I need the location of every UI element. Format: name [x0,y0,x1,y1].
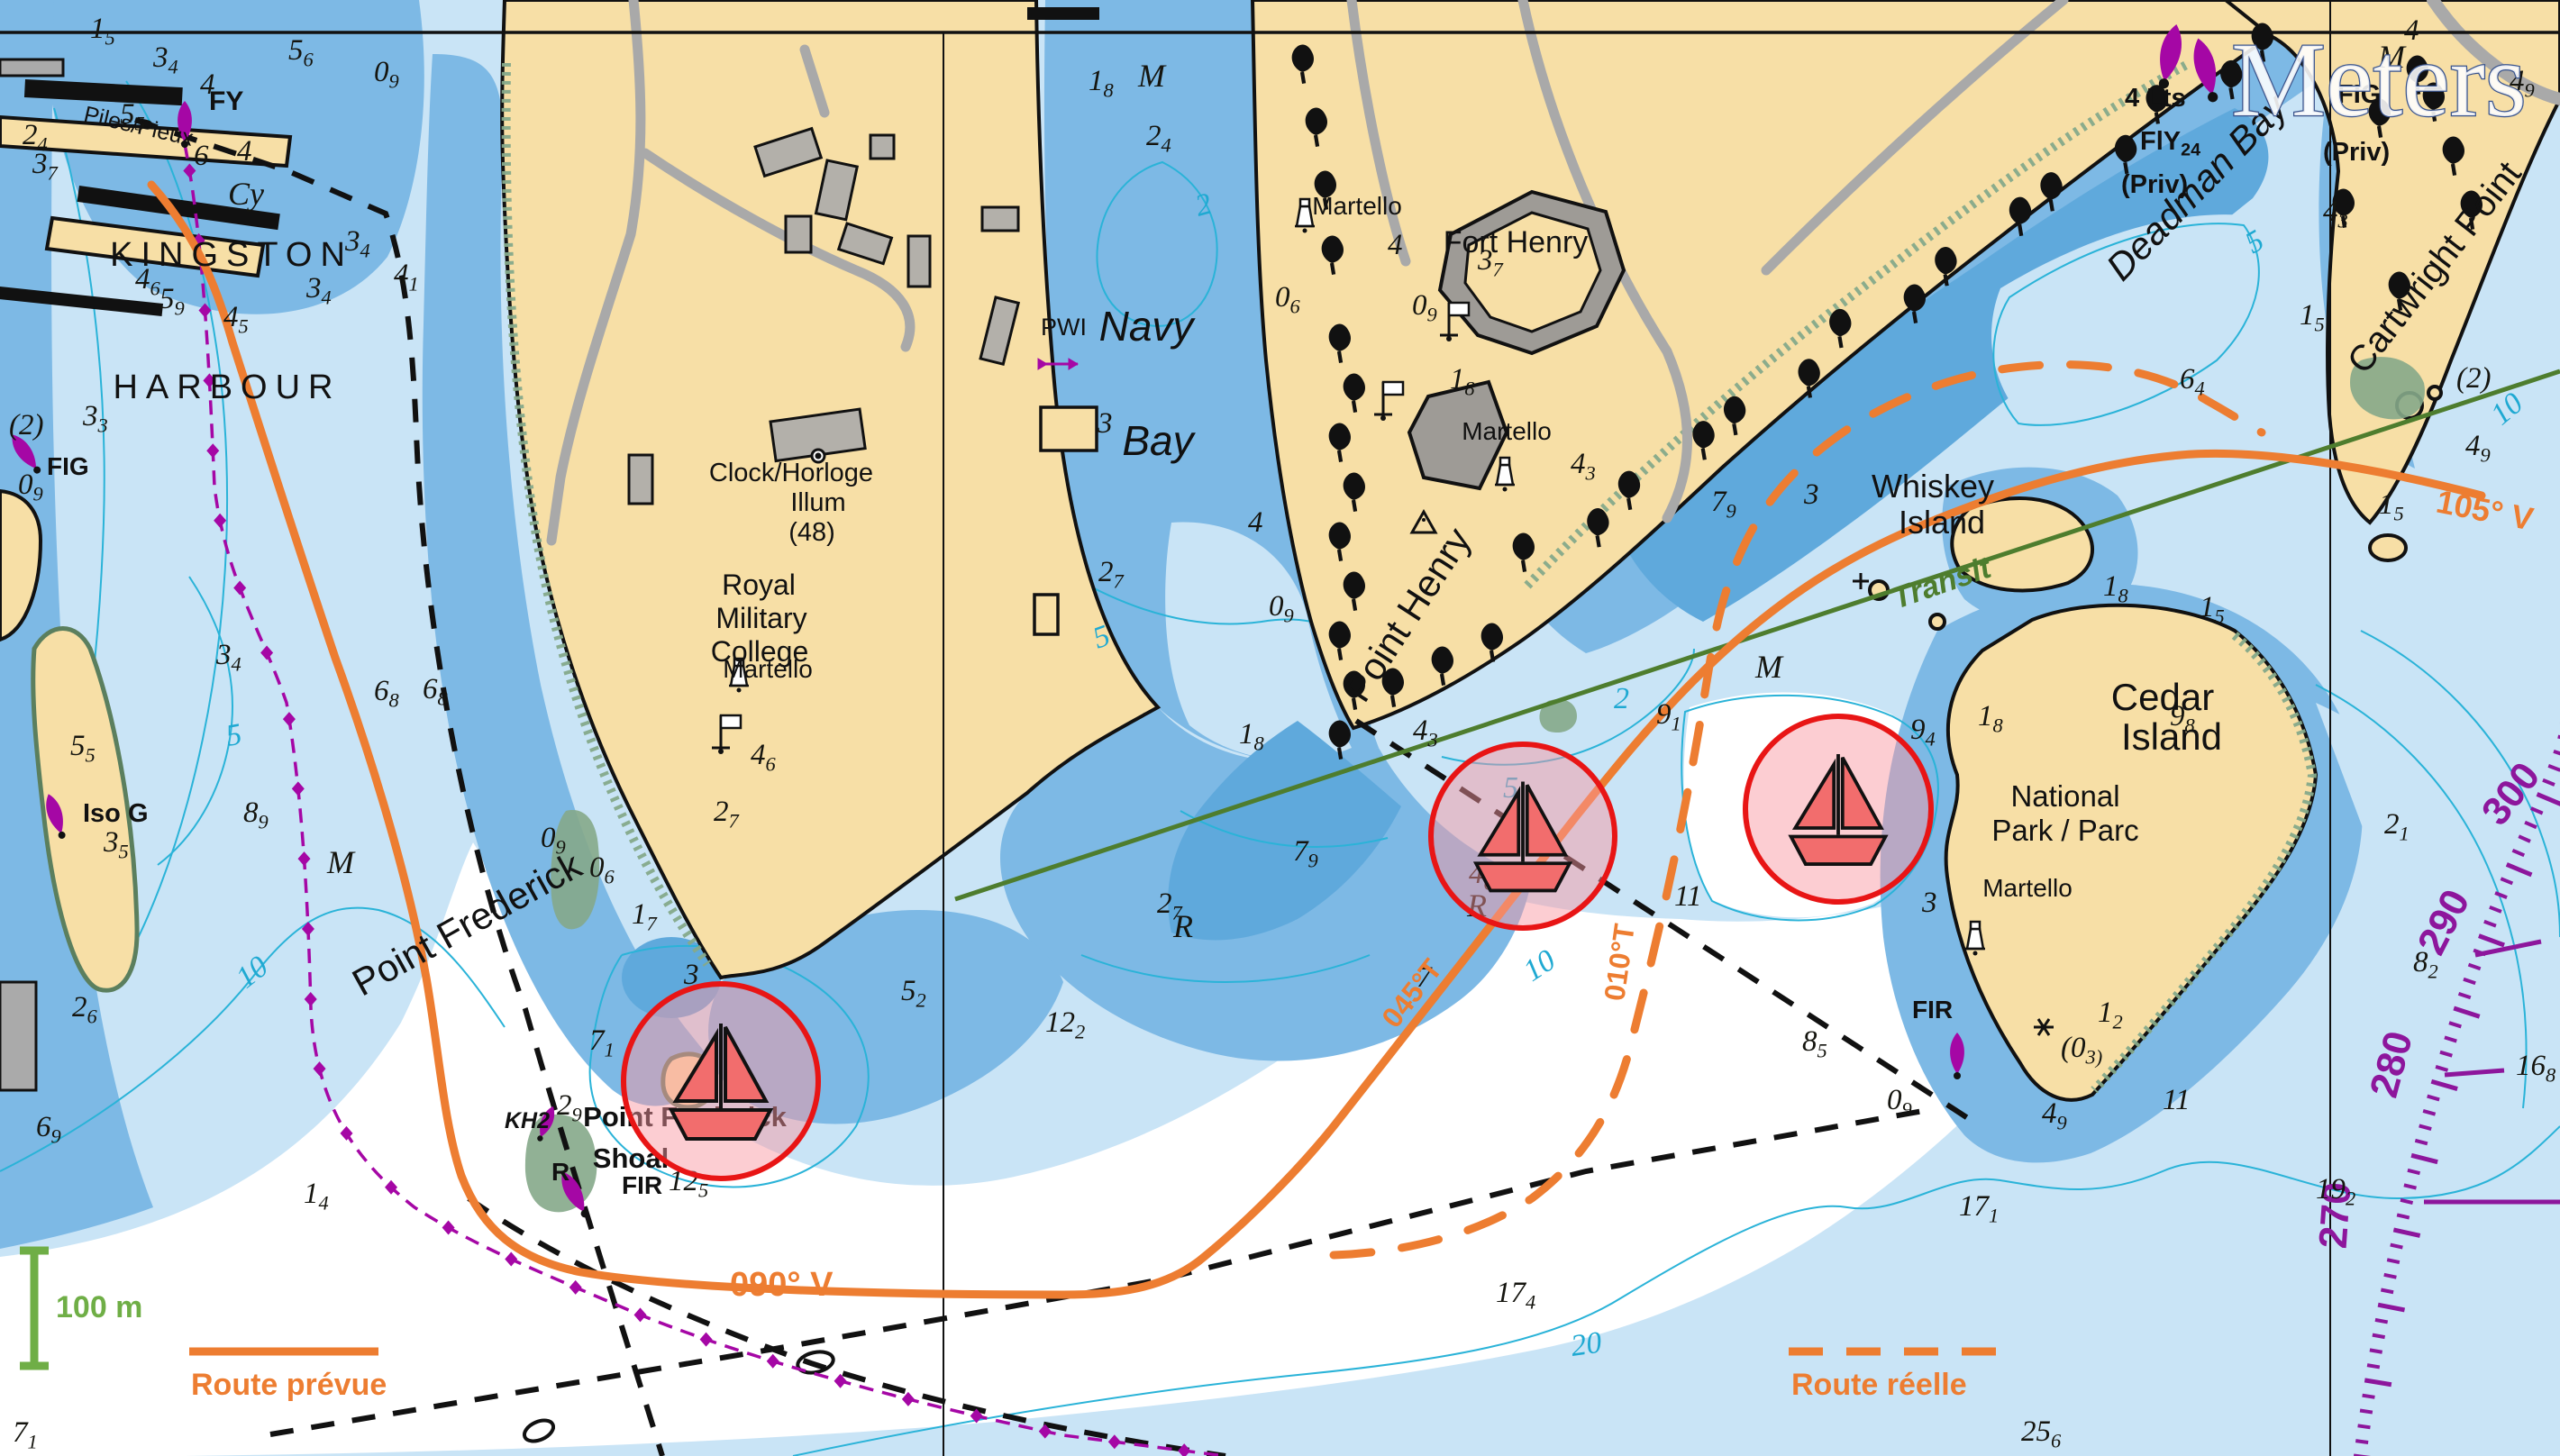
place-label: Martello [1982,874,2073,902]
contour-depth-label: 2 [1614,682,1629,715]
place-label: Military [715,602,806,634]
aid-label: FY [209,86,243,116]
compass-tick [2367,1365,2380,1367]
aid-label: PWI [1041,314,1087,341]
seabed-label: R [1172,908,1193,944]
sounding-label: 3 [1803,478,1819,511]
compass-tick [2387,1260,2400,1262]
aid-label: 4 Lts [2125,84,2186,113]
place-label: Bay [1122,417,1196,464]
seabed-label: M [326,844,356,880]
aid-label: R [551,1158,569,1186]
sailboat-marker-1[interactable] [624,984,818,1178]
meters-watermark: Meters [2231,21,2527,139]
planned-route-label: Route prévue [191,1368,387,1402]
sailboat-marker-2[interactable] [1431,744,1615,928]
sounding-label: 11 [1674,880,1702,913]
place-label: Park / Parc [1991,814,2138,847]
compass-tick [2373,1335,2385,1337]
place-label: Fort Henry [1444,225,1589,259]
nautical-chart: 270280290300 155634409556434372 [0,0,2560,1456]
place-label: College [711,635,809,668]
place-label: Clock/Horloge [709,459,873,487]
place-label: (48) [788,518,835,547]
actual-route-label: Route réelle [1791,1368,1967,1402]
compass-tick [2384,1275,2397,1278]
sounding-label: 3 [1097,407,1113,440]
aid-label: FIG [47,452,89,480]
seabed-label: Cy [228,176,264,212]
contour-depth-label: 20 [1569,1326,1604,1363]
sounding-label: 4 [1248,506,1263,539]
aid-label: FIR [1912,996,1953,1024]
sailboat-marker-3[interactable] [1745,716,1931,902]
compass-tick [2370,1350,2382,1351]
aid-label: Iso G [83,799,149,828]
bearing-label: 090° V [730,1266,834,1304]
sounding-label: 4 [1388,229,1403,261]
scale-label: 100 m [56,1290,142,1324]
seabed-label: M [1137,58,1167,94]
sounding-label: 11 [2163,1084,2191,1116]
sounding-label: 4 [237,135,252,168]
sounding-label: (2) [2456,362,2491,395]
compass-tick [2360,1410,2373,1412]
seabed-label: M [1754,649,1784,685]
place-label: KINGSTON [110,236,353,274]
compass-tick [2355,1441,2368,1442]
place-label: Island [2121,715,2222,758]
compass-tick [2363,1396,2375,1397]
aid-label: FIR [622,1171,662,1199]
aid-label: KH2 [505,1108,550,1133]
place-label: Island [1899,504,1985,541]
place-label: National [2010,779,2119,813]
place-label: Whiskey [1872,468,1994,505]
place-label: HARBOUR [113,369,341,406]
place-label: Illum [790,488,845,517]
compass-tick [2358,1425,2371,1427]
sounding-label: (2) [9,409,43,441]
place-label: Navy [1099,303,1197,350]
aid-label: (Priv) [2121,170,2188,199]
place-label: Martello [1312,192,1402,220]
sounding-label: 6 [194,140,209,172]
aid-label: (Priv) [2323,138,2390,167]
place-label: Royal [722,569,796,601]
sounding-label: 3 [1921,887,1937,919]
place-label: Martello [1462,417,1552,445]
compass-tick [2381,1290,2393,1293]
compass-tick [2375,1320,2388,1323]
place-label: Cedar [2111,676,2214,718]
